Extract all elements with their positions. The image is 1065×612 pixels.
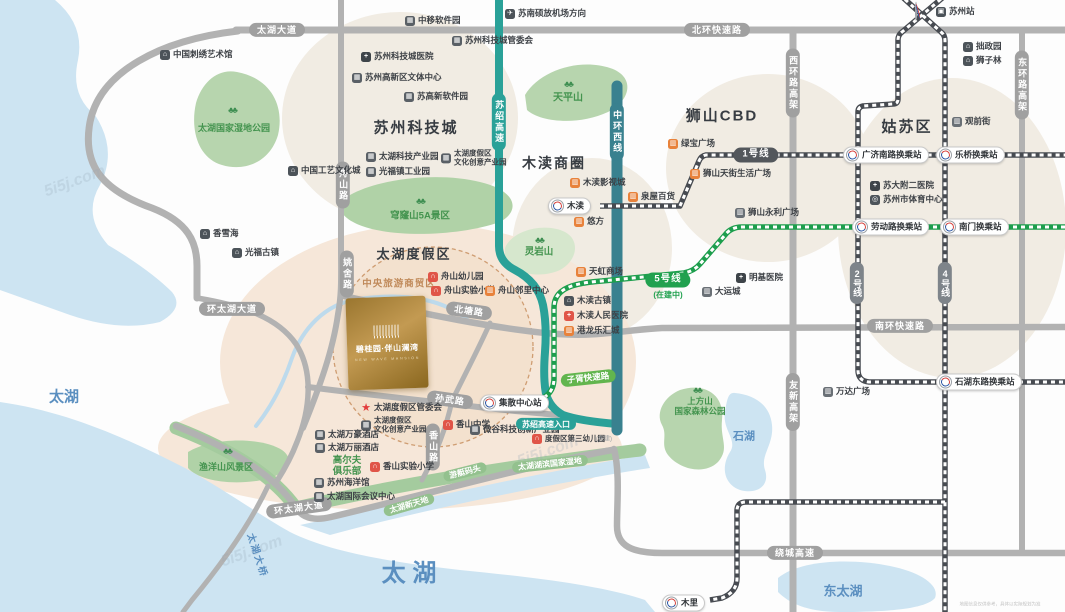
barcode-decoration [373, 325, 399, 339]
poi-text: 苏州科技城医院 [374, 52, 434, 62]
park-lingyanshan: 灵岩山 [525, 248, 554, 259]
poi-text: 太湖国际会议中心 [327, 492, 395, 502]
poi-guangfu-old-town: ⌂光福古镇 [232, 248, 279, 258]
poi-cultural-creative-park-n: ▦太湖度假区 文化创意产业园 [441, 149, 507, 166]
metro-roundel-icon [939, 149, 952, 162]
metro-roundel-icon [665, 597, 678, 610]
poi-text: 狮山天街生活广场 [703, 169, 771, 179]
museum-icon: ⌂ [963, 56, 973, 66]
metro-line4-badge: 4号线 [938, 262, 952, 304]
poi-text: 光福古镇 [245, 248, 279, 258]
road-yaoshe: 姚舍路 [340, 251, 354, 298]
school-icon: ∩ [431, 286, 441, 296]
poi-sports-center: ◎苏州市体育中心 [870, 195, 943, 205]
poi-text: 苏大附二医院 [883, 181, 934, 191]
poi-text: 中国工艺文化城 [301, 166, 361, 176]
metro-station-shihudonglu: 石湖东路换乘站 [936, 374, 1022, 391]
metro-station-guangjinanlu: 广济南路换乘站 [843, 147, 929, 164]
poi-benq-hospital: +明基医院 [736, 273, 783, 283]
poi-text: 香山实验小学 [383, 462, 434, 472]
central-tourism-trade-zone: 中央旅游商贸区 [362, 280, 436, 291]
poi-wanda-plaza: ▥万达广场 [823, 387, 870, 397]
building-icon: ▦ [404, 92, 414, 102]
property-name: 碧桂园·伴山澜湾 [356, 342, 419, 355]
building-icon: ▦ [366, 167, 376, 177]
shop-icon: ▥ [628, 192, 638, 202]
poi-marriott-hotel: ▦太湖万豪酒店 [315, 430, 379, 440]
poi-zhongyi-software-park: ▦中移软件园 [405, 16, 461, 26]
line5-under-construction-note: (在建中) [653, 290, 682, 299]
metro-line2-badge: 2号线 [850, 262, 864, 304]
museum-icon: ⌂ [564, 296, 574, 306]
poi-mudu-film-city: ▥木渎影视城 [570, 178, 626, 188]
museum-icon: ⌂ [200, 229, 210, 239]
station-name: 木渎 [567, 201, 584, 211]
shop-gray-icon: ▥ [823, 387, 833, 397]
poi-text: 香雪海 [213, 229, 239, 239]
poi-text: 太湖度假区 文化创意产业园 [454, 149, 507, 166]
road-north-ring: 北环快速路 [684, 23, 750, 37]
poi-renaissance-hotel: ▦太湖万丽酒店 [315, 443, 379, 453]
museum-icon: ⌂ [963, 42, 973, 52]
road-huantaihu-avenue-n: 环太湖大道 [199, 302, 265, 316]
poi-resort-admin: ★太湖度假区管委会 [361, 403, 442, 413]
station-name: 木里 [681, 598, 698, 608]
poi-sst-admin: ▦苏州科技城管委会 [452, 36, 533, 46]
metro-roundel-icon [915, 2, 917, 21]
road-east-ring-viaduct: 东环路高架 [1015, 51, 1029, 120]
poi-text: 舟山幼儿园 [441, 272, 484, 282]
lake-taihu-west: 太湖 [49, 388, 79, 405]
tree-icon: ♣♣ [228, 105, 236, 115]
metro-station-mudu: 木渎 [548, 198, 591, 215]
shop-gray-icon: ▥ [702, 287, 712, 297]
region-mudu-business-area: 木渎商圈 [522, 155, 586, 171]
poi-shishan-tianjie: ▥狮山天街生活广场 [690, 169, 771, 179]
poi-text: 苏州科技城管委会 [465, 36, 533, 46]
poi-text: 拙政园 [976, 42, 1002, 52]
shop-gray-icon: ▥ [952, 117, 962, 127]
building-icon: ▦ [366, 152, 376, 162]
poi-resort-third-kindergarten: ∩度假区第三幼儿园 [532, 434, 605, 444]
sports-icon: ◎ [870, 195, 880, 205]
shop-gray-icon: ▥ [735, 208, 745, 218]
shop-icon: ▥ [570, 178, 580, 188]
poi-mudu-hospital: +木渎人民医院 [564, 311, 628, 321]
poi-xiangxuehai: ⌂香雪海 [200, 229, 239, 239]
poi-mudu-old-town: ⌂木渎古镇 [564, 296, 611, 306]
poi-zhoushan-kindergarten: ∩舟山幼儿园 [428, 272, 484, 282]
museum-icon: ⌂ [160, 50, 170, 60]
poi-suda-hospital: +苏大附二医院 [870, 181, 934, 191]
poi-zhoushan-neighborhood: ▥舟山邻里中心 [485, 286, 549, 296]
road-west-ring-viaduct: 西环路高架 [786, 49, 800, 118]
metro-line1-badge: 1号线 [733, 148, 778, 163]
metro-roundel-icon [846, 149, 859, 162]
poi-text: 木渎人民医院 [577, 311, 628, 321]
poi-taihu-tech-park: ▦太湖科技产业园 [366, 152, 439, 162]
road-sushao-expressway: 苏绍高速 [492, 93, 506, 151]
lake-shihu: 石湖 [733, 431, 755, 444]
metro-station-jisan-center: 集散中心站 [480, 395, 549, 412]
poi-izumiya: ▥泉屋百货 [628, 192, 675, 202]
sushao-expressway-entrance: 苏绍高速入口 [516, 418, 576, 430]
shop-icon: ▥ [690, 169, 700, 179]
poi-lvbao-plaza: ▥绿宝广场 [668, 139, 715, 149]
poi-craft-culture-city: ⌂中国工艺文化城 [288, 166, 361, 176]
road-south-ring: 南环快速路 [867, 319, 933, 333]
park-taihu-wetland: 太湖国家湿地公园 [198, 123, 270, 133]
poi-text: 苏州高新区文体中心 [365, 73, 442, 83]
poi-text: 狮子林 [976, 56, 1002, 66]
building-icon: ▦ [470, 425, 480, 435]
building-icon: ▦ [314, 492, 324, 502]
building-icon: ▦ [315, 443, 325, 453]
station-name: 劳动路换乘站 [871, 222, 922, 232]
golf-club-label: 高尔夫 俱乐部 [333, 456, 362, 478]
metro-station-muli: 木里 [662, 595, 705, 612]
poi-text: 中国刺绣艺术馆 [173, 50, 233, 60]
tree-icon: ♣♣ [564, 79, 572, 89]
road-middle-ring-west: 中环西线 [610, 103, 624, 161]
park-yuyangshan: 渔洋山风景区 [199, 462, 253, 472]
tree-icon: ♣♣ [535, 235, 543, 245]
hospital-icon: + [870, 181, 880, 191]
tree-icon: ♣♣ [693, 385, 701, 395]
map-canvas[interactable]: 碧桂园·伴山澜湾 NEW WAVE MANSION 苏州科技城木渎商圈狮山CBD… [0, 0, 1065, 612]
road-youxin-viaduct: 友新高架 [786, 373, 800, 431]
metro-station-nanmen: 南门换乘站 [940, 219, 1009, 236]
poi-text: 太湖度假区 文化创意产业园 [374, 416, 427, 433]
park-taihu-wetland-shape [194, 71, 280, 167]
poi-lion-grove: ⌂狮子林 [963, 56, 1002, 66]
station-name: 广济南路换乘站 [862, 150, 922, 160]
park-qionglongshan: 穹窿山5A景区 [390, 212, 450, 223]
poi-humble-admin-garden: ⌂拙政园 [963, 42, 1002, 52]
property-marker: 碧桂园·伴山澜湾 NEW WAVE MANSION [345, 296, 428, 391]
school-icon: ∩ [428, 272, 438, 282]
building-icon: ▦ [314, 478, 324, 488]
building-icon: ▦ [315, 430, 325, 440]
poi-embroidery-museum: ⌂中国刺绣艺术馆 [160, 50, 233, 60]
metro-roundel-icon [855, 221, 868, 234]
poi-text: 木渎影视城 [583, 178, 626, 188]
poi-xiangshan-primary: ∩香山实验小学 [370, 462, 434, 472]
station-name: 集散中心站 [499, 398, 542, 408]
poi-text: 泉屋百货 [641, 192, 675, 202]
poi-text: 太湖万豪酒店 [328, 430, 379, 440]
poi-text: 苏高新软件园 [417, 92, 468, 102]
shop-icon: ▥ [574, 217, 584, 227]
hospital-icon: + [361, 52, 371, 62]
shop-icon: ▥ [485, 286, 495, 296]
region-taihu-resort: 太湖度假区 [376, 248, 451, 263]
poi-guanqian-street: ▥观前街 [952, 117, 991, 127]
poi-text: 光福镇工业园 [379, 167, 430, 177]
museum-icon: ⌂ [232, 248, 242, 258]
poi-airport-direction: ✈苏南硕放机场方向 [505, 9, 586, 19]
poi-text: 观前街 [965, 117, 991, 127]
poi-text: 明基医院 [749, 273, 783, 283]
station-name: 石湖东路换乘站 [955, 377, 1015, 387]
train-icon: ▣ [936, 7, 946, 17]
poi-text: 天虹商场 [589, 267, 623, 277]
plane-icon: ✈ [505, 9, 515, 19]
property-name-en: NEW WAVE MANSION [355, 356, 420, 362]
museum-icon: ⌂ [288, 166, 298, 176]
metro-station-laodonglu: 劳动路换乘站 [852, 219, 929, 236]
map-geometry [0, 0, 1065, 612]
poi-suzhou-railway-station: ▣苏州站 [936, 7, 975, 17]
building-icon: ▦ [441, 153, 451, 163]
building-icon: ▦ [452, 36, 462, 46]
poi-text: 大运城 [715, 287, 741, 297]
poi-text: 木渎古镇 [577, 296, 611, 306]
region-gusu-district: 姑苏区 [881, 118, 932, 135]
metro-line5-badge: 5号线 [645, 273, 690, 288]
poi-ganglong-mall: ▥港龙乐汇城 [564, 326, 620, 336]
poi-sugaoxin-software-park: ▦苏高新软件园 [404, 92, 468, 102]
metro-roundel-icon [939, 376, 952, 389]
poi-text: 太湖度假区管委会 [374, 403, 442, 413]
shop-icon: ▥ [564, 326, 574, 336]
school-icon: ∩ [443, 420, 453, 430]
under-construction-note: (在建) [596, 437, 612, 444]
poi-text: 狮山永利广场 [748, 208, 799, 218]
poi-text: 太湖万丽酒店 [328, 443, 379, 453]
map-disclaimer: 地图信息仅供参考，具体以实际规划为准 [960, 601, 1041, 606]
poi-text: 悠方 [587, 217, 604, 227]
region-suzhou-science-city: 苏州科技城 [373, 119, 458, 136]
poi-shishan-yongli: ▥狮山永利广场 [735, 208, 799, 218]
poi-text: 绿宝广场 [681, 139, 715, 149]
poi-snd-culture-sports: ▦苏州高新区文体中心 [352, 73, 442, 83]
building-icon: ▦ [405, 16, 415, 26]
park-shangfangshan: 上方山 国家森林公园 [674, 397, 725, 417]
poi-sst-hospital: +苏州科技城医院 [361, 52, 434, 62]
poi-text: 太湖科技产业园 [379, 152, 439, 162]
shop-icon: ▥ [668, 139, 678, 149]
poi-text: 苏州海洋馆 [327, 478, 370, 488]
metro-roundel-icon [943, 221, 956, 234]
metro-station-leqiao: 乐桥换乘站 [936, 147, 1005, 164]
metro-roundel-icon [483, 397, 496, 410]
poi-guangfu-industrial-park: ▦光福镇工业园 [366, 167, 430, 177]
poi-text: 港龙乐汇城 [577, 326, 620, 336]
poi-text: 苏州市体育中心 [883, 195, 943, 205]
tree-icon: ♣♣ [223, 446, 231, 456]
region-shishan-cbd: 狮山CBD [686, 107, 759, 124]
star-icon: ★ [361, 403, 371, 413]
poi-text: 万达广场 [836, 387, 870, 397]
poi-text: 舟山邻里中心 [498, 286, 549, 296]
poi-youfang: ▥悠方 [574, 217, 604, 227]
station-name: 南门换乘站 [959, 222, 1002, 232]
lake-taihu-west-shape [0, 0, 176, 326]
tree-icon: ♣♣ [416, 196, 424, 206]
school-icon: ∩ [532, 434, 542, 444]
poi-text: 中移软件园 [418, 16, 461, 26]
road-taihu-avenue: 太湖大道 [249, 23, 305, 37]
lake-east-taihu: 东太湖 [823, 585, 862, 600]
hospital-red-icon: + [564, 311, 574, 321]
hospital-icon: + [736, 273, 746, 283]
poi-text: 苏南硕放机场方向 [518, 9, 586, 19]
poi-suzhou-aquarium: ▦苏州海洋馆 [314, 478, 370, 488]
lake-taihu-south: 太 湖 [382, 560, 437, 588]
building-icon: ▦ [352, 73, 362, 83]
road-raocheng-expressway: 绕城高速 [767, 546, 823, 560]
metro-roundel-icon [551, 200, 564, 213]
poi-taihu-convention-center: ▦太湖国际会议中心 [314, 492, 395, 502]
suzhou-metro-logo [915, 3, 917, 21]
shop-icon: ▥ [576, 267, 586, 277]
school-icon: ∩ [370, 462, 380, 472]
station-name: 乐桥换乘站 [955, 150, 998, 160]
poi-dayuncheng: ▥大运城 [702, 287, 741, 297]
poi-tianhong-mall: ▥天虹商场 [576, 267, 623, 277]
poi-text: 苏州站 [949, 7, 975, 17]
park-tianpingshan: 天平山 [553, 92, 583, 104]
